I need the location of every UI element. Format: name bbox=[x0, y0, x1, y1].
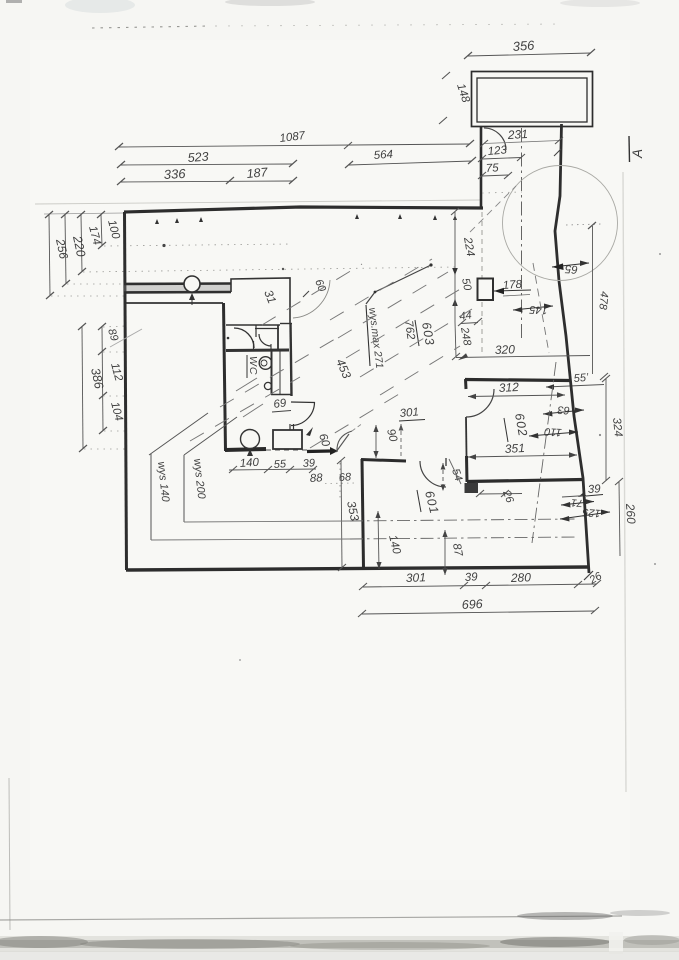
svg-text:312: 312 bbox=[498, 380, 519, 395]
svg-text:71: 71 bbox=[571, 496, 583, 509]
svg-text:301: 301 bbox=[406, 570, 427, 585]
svg-text:75: 75 bbox=[486, 162, 500, 175]
svg-text:356: 356 bbox=[512, 37, 535, 54]
svg-text:178: 178 bbox=[502, 279, 523, 292]
svg-text:68: 68 bbox=[339, 471, 353, 484]
svg-text:123: 123 bbox=[487, 144, 508, 158]
svg-text:65: 65 bbox=[564, 262, 578, 275]
svg-text:301: 301 bbox=[399, 406, 419, 420]
svg-text:A: A bbox=[630, 149, 645, 159]
svg-text:WC: WC bbox=[247, 356, 259, 376]
svg-text:478: 478 bbox=[596, 291, 610, 311]
svg-text:260: 260 bbox=[623, 502, 638, 524]
svg-text:320: 320 bbox=[495, 342, 516, 357]
svg-text:55’: 55’ bbox=[573, 372, 589, 385]
svg-text:324: 324 bbox=[610, 417, 624, 437]
svg-text:69: 69 bbox=[273, 397, 288, 411]
svg-text:523: 523 bbox=[187, 150, 209, 165]
svg-text:351: 351 bbox=[504, 441, 525, 456]
svg-text:145: 145 bbox=[528, 303, 548, 316]
svg-text:88: 88 bbox=[310, 472, 324, 485]
svg-text:63: 63 bbox=[556, 403, 570, 416]
svg-text:336: 336 bbox=[163, 166, 186, 182]
svg-text:564: 564 bbox=[373, 149, 393, 162]
svg-text:696: 696 bbox=[461, 597, 483, 612]
svg-text:140: 140 bbox=[239, 457, 260, 470]
svg-text:39: 39 bbox=[588, 483, 602, 496]
svg-text:39: 39 bbox=[302, 457, 315, 470]
svg-text:231: 231 bbox=[506, 127, 528, 142]
svg-text:280: 280 bbox=[510, 570, 532, 585]
svg-text:39: 39 bbox=[465, 571, 479, 584]
svg-text:187: 187 bbox=[246, 165, 269, 181]
svg-text:55: 55 bbox=[273, 458, 287, 471]
